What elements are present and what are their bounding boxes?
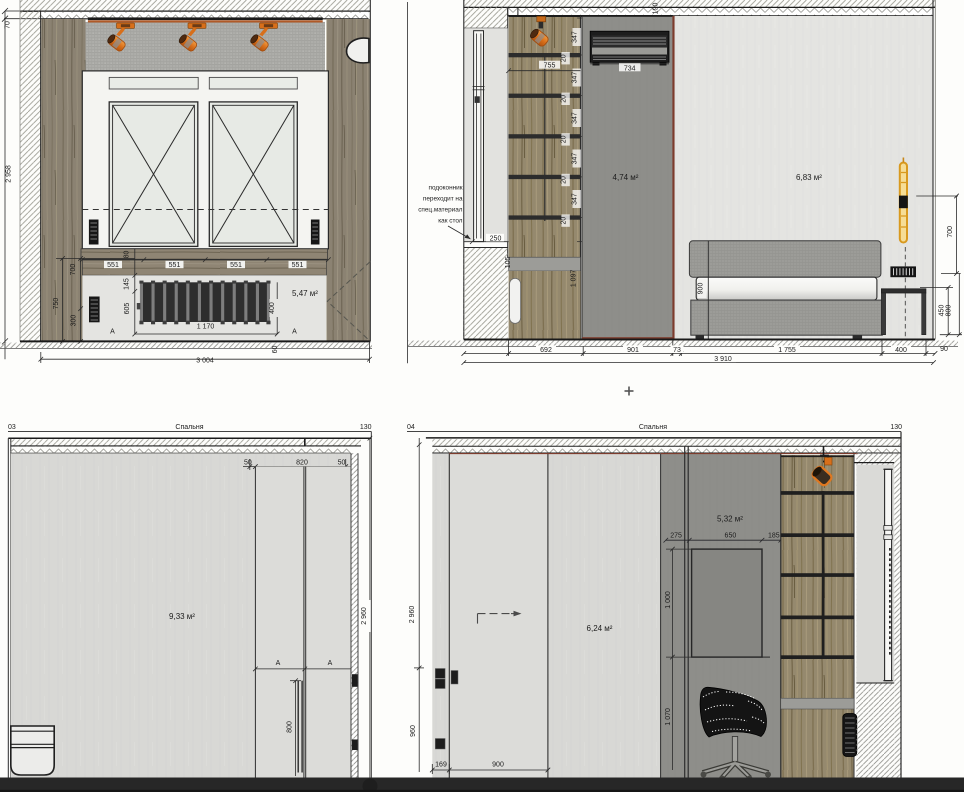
svg-text:347: 347 <box>572 72 579 84</box>
svg-text:5,47 м²: 5,47 м² <box>292 289 318 298</box>
svg-text:250: 250 <box>490 235 502 242</box>
svg-text:A: A <box>328 660 333 667</box>
svg-text:130: 130 <box>890 424 902 431</box>
svg-text:1 097: 1 097 <box>571 270 578 288</box>
svg-text:5,32 м²: 5,32 м² <box>717 515 743 524</box>
svg-text:спец.материал: спец.материал <box>418 207 463 214</box>
svg-text:169: 169 <box>435 762 447 769</box>
svg-text:A: A <box>276 660 281 667</box>
svg-text:1 755: 1 755 <box>778 347 796 354</box>
svg-text:960: 960 <box>410 725 417 737</box>
svg-text:Спальня: Спальня <box>639 424 667 431</box>
svg-text:190: 190 <box>653 3 660 15</box>
svg-text:551: 551 <box>230 262 242 269</box>
svg-text:A: A <box>292 329 297 336</box>
svg-text:переходит на: переходит на <box>423 196 463 203</box>
svg-text:50: 50 <box>244 460 252 467</box>
svg-text:как стол: как стол <box>438 218 463 225</box>
svg-text:130: 130 <box>360 424 372 431</box>
svg-text:20: 20 <box>561 217 568 225</box>
svg-text:3 910: 3 910 <box>714 356 732 363</box>
svg-text:820: 820 <box>296 460 308 467</box>
svg-text:901: 901 <box>627 347 639 354</box>
svg-text:400: 400 <box>895 347 907 354</box>
svg-text:551: 551 <box>292 262 304 269</box>
svg-text:105: 105 <box>505 256 512 268</box>
svg-text:300: 300 <box>70 315 77 327</box>
svg-text:04: 04 <box>407 424 415 431</box>
svg-text:275: 275 <box>670 533 682 540</box>
svg-text:700: 700 <box>947 226 954 238</box>
svg-text:4,74 м²: 4,74 м² <box>613 173 639 182</box>
svg-text:900: 900 <box>492 762 504 769</box>
svg-text:2 960: 2 960 <box>361 607 368 625</box>
svg-text:551: 551 <box>169 262 181 269</box>
svg-text:50: 50 <box>338 460 346 467</box>
svg-text:подоконник: подоконник <box>428 185 462 192</box>
svg-text:400: 400 <box>269 302 276 314</box>
svg-text:20: 20 <box>561 135 568 143</box>
svg-text:347: 347 <box>572 31 579 43</box>
svg-text:800: 800 <box>946 305 953 317</box>
svg-text:20: 20 <box>561 95 568 103</box>
svg-text:70: 70 <box>5 21 12 29</box>
svg-text:6,83 м²: 6,83 м² <box>796 173 822 182</box>
svg-text:9,33 м²: 9,33 м² <box>169 612 195 621</box>
svg-text:1 170: 1 170 <box>197 324 215 331</box>
svg-text:1 000: 1 000 <box>665 591 672 609</box>
svg-text:03: 03 <box>8 424 16 431</box>
svg-text:700: 700 <box>70 264 77 276</box>
svg-text:347: 347 <box>572 112 579 124</box>
svg-text:6,24 м²: 6,24 м² <box>587 624 613 633</box>
svg-text:185: 185 <box>768 533 780 540</box>
svg-text:450: 450 <box>938 305 945 317</box>
svg-text:551: 551 <box>107 262 119 269</box>
svg-text:3 004: 3 004 <box>196 358 214 365</box>
svg-text:2 960: 2 960 <box>409 606 416 624</box>
svg-text:800: 800 <box>286 721 293 733</box>
svg-text:A: A <box>110 329 115 336</box>
svg-text:1 070: 1 070 <box>665 708 672 726</box>
svg-text:347: 347 <box>572 193 579 205</box>
svg-text:80: 80 <box>124 251 131 259</box>
svg-text:60: 60 <box>272 346 279 354</box>
svg-text:900: 900 <box>698 283 705 295</box>
svg-text:145: 145 <box>124 278 131 290</box>
svg-text:734: 734 <box>624 65 636 72</box>
svg-text:20: 20 <box>561 176 568 184</box>
svg-text:Спальня: Спальня <box>175 424 203 431</box>
svg-text:20: 20 <box>561 54 568 62</box>
svg-text:605: 605 <box>124 303 131 315</box>
svg-text:650: 650 <box>725 533 737 540</box>
svg-text:692: 692 <box>540 347 552 354</box>
svg-text:755: 755 <box>544 63 556 70</box>
svg-text:90: 90 <box>940 346 948 353</box>
svg-text:750: 750 <box>53 298 60 310</box>
svg-text:73: 73 <box>673 347 681 354</box>
svg-text:2 958: 2 958 <box>6 165 13 183</box>
svg-text:347: 347 <box>572 153 579 165</box>
